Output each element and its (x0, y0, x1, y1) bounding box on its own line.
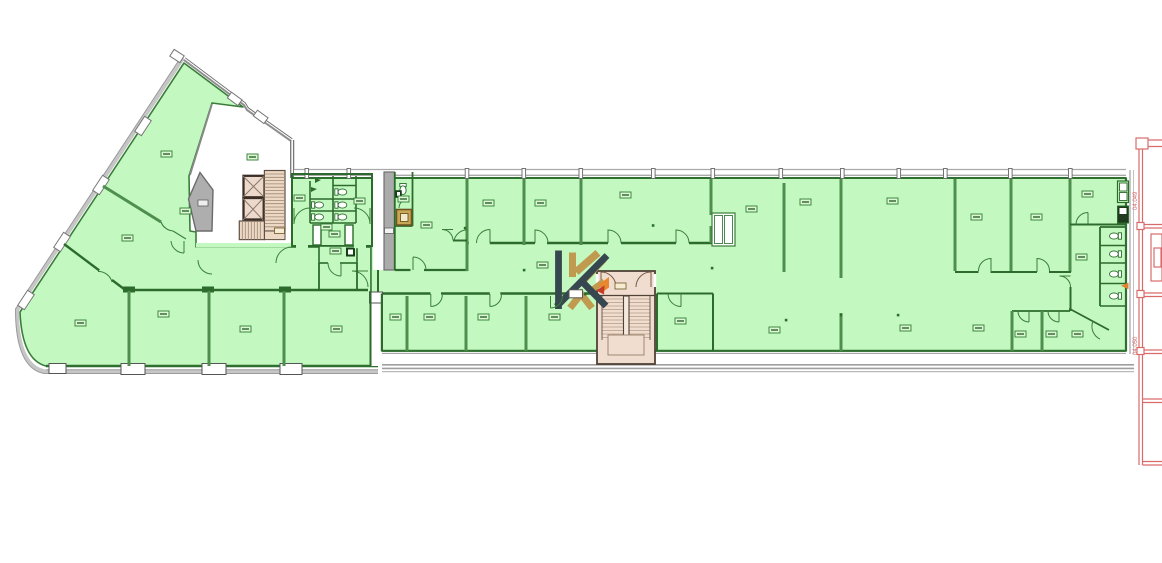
svg-text:04.050: 04.050 (1133, 336, 1139, 355)
svg-text:04.049: 04.049 (1133, 191, 1139, 210)
